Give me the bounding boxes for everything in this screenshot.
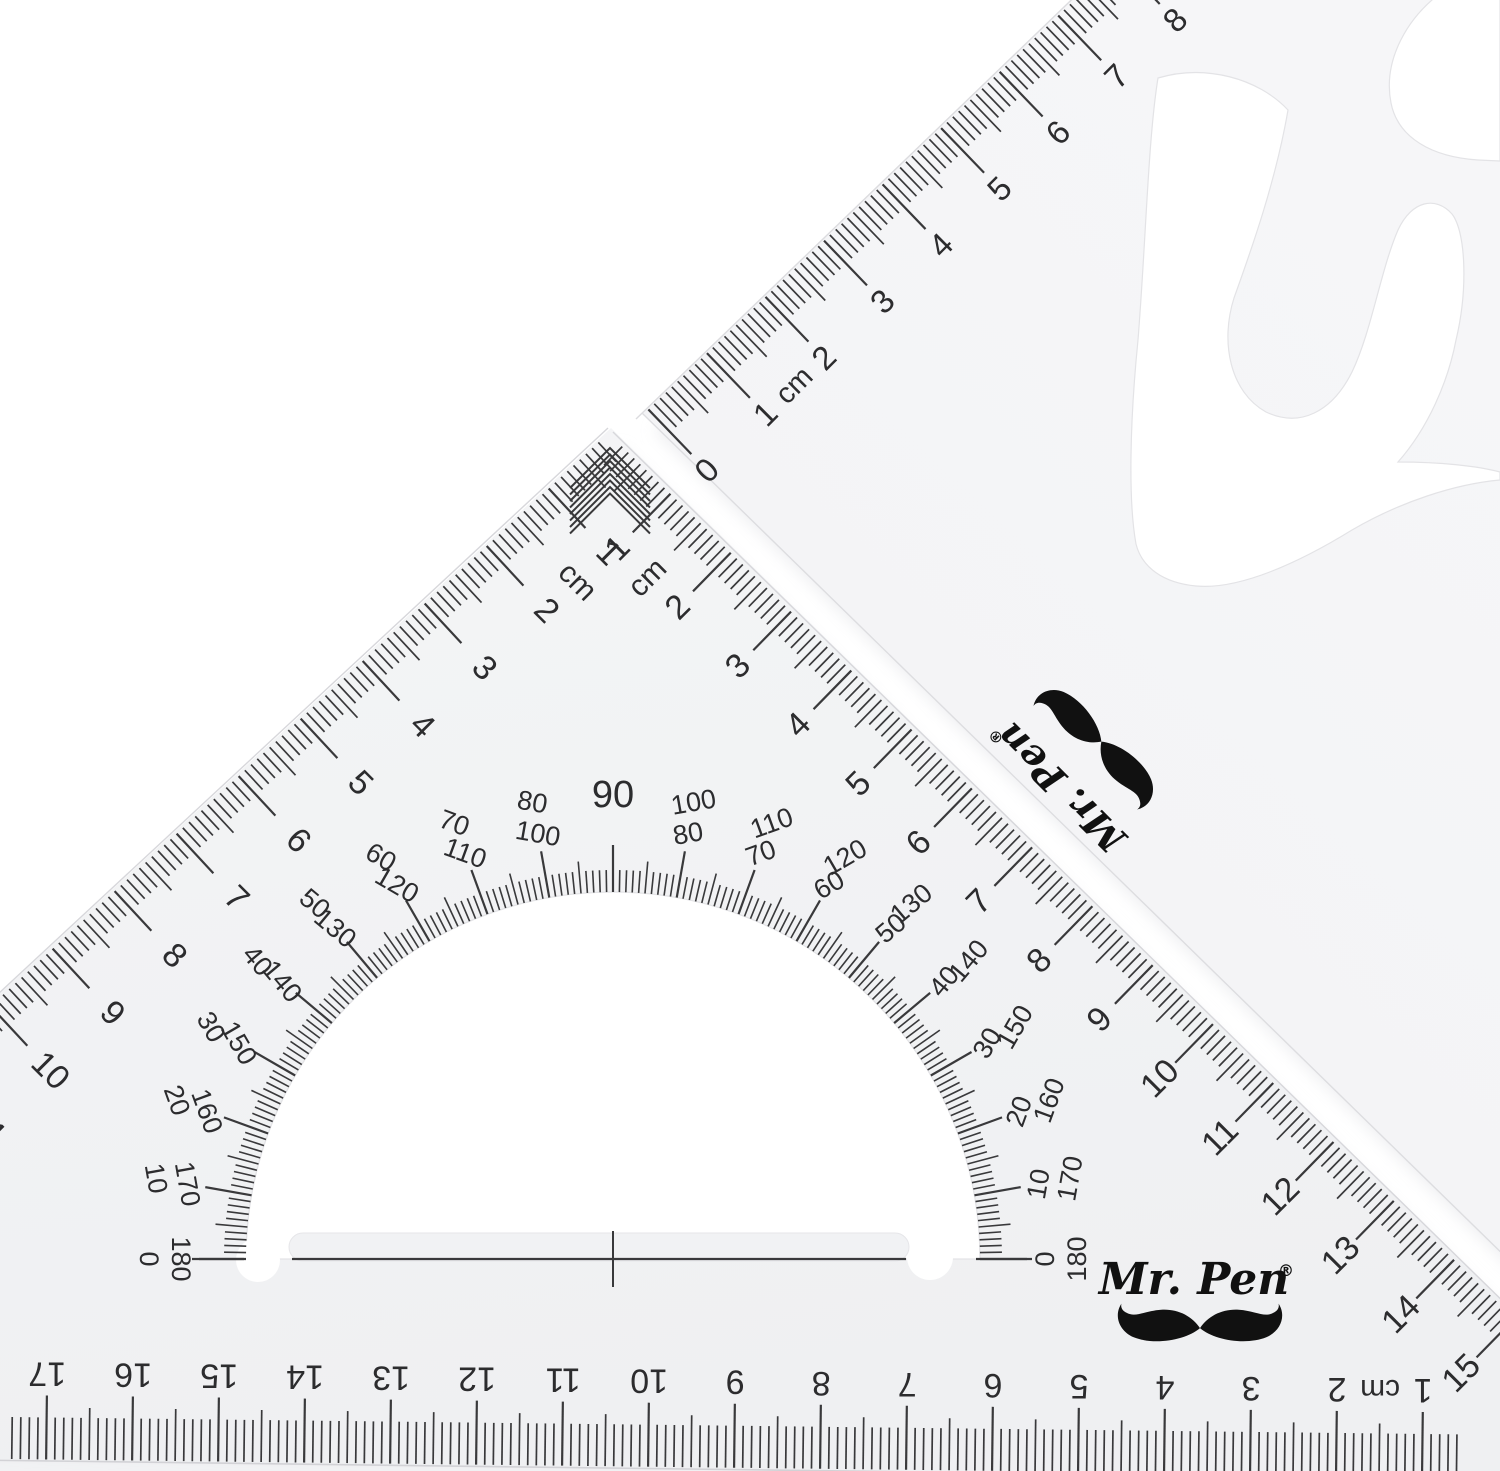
svg-text:12: 12 bbox=[458, 1360, 496, 1398]
ruler-scene: 1cm2345678910111cm2345678910111213141501… bbox=[0, 0, 1500, 1471]
svg-text:180: 180 bbox=[166, 1236, 196, 1281]
svg-text:80: 80 bbox=[671, 816, 706, 851]
svg-text:9: 9 bbox=[726, 1363, 745, 1401]
svg-text:10: 10 bbox=[139, 1161, 174, 1196]
registered-mark: ® bbox=[1278, 1261, 1294, 1280]
svg-text:15: 15 bbox=[200, 1357, 238, 1395]
product-photo: 1cm2345678910111cm2345678910111213141501… bbox=[0, 0, 1500, 1471]
svg-text:0: 0 bbox=[1030, 1251, 1060, 1266]
brand-logo-lower: Mr. Pen ® bbox=[1097, 1254, 1294, 1341]
svg-text:4: 4 bbox=[1156, 1368, 1175, 1406]
svg-text:180: 180 bbox=[1062, 1236, 1092, 1281]
svg-text:13: 13 bbox=[372, 1359, 410, 1397]
svg-text:10: 10 bbox=[1021, 1167, 1056, 1202]
svg-text:6: 6 bbox=[984, 1366, 1003, 1404]
svg-text:5: 5 bbox=[1070, 1367, 1089, 1405]
svg-text:90: 90 bbox=[592, 774, 634, 816]
svg-text:0: 0 bbox=[134, 1251, 164, 1266]
svg-text:7: 7 bbox=[898, 1365, 917, 1403]
svg-text:16: 16 bbox=[114, 1355, 152, 1393]
svg-text:cm: cm bbox=[1360, 1373, 1400, 1406]
svg-text:10: 10 bbox=[630, 1362, 668, 1400]
svg-text:14: 14 bbox=[286, 1358, 324, 1396]
protractor-center-bar bbox=[289, 1233, 909, 1261]
svg-text:17: 17 bbox=[28, 1354, 66, 1392]
svg-text:3: 3 bbox=[1242, 1369, 1261, 1407]
svg-text:2: 2 bbox=[1328, 1370, 1347, 1408]
svg-text:11: 11 bbox=[545, 1361, 580, 1399]
brand-name: Mr. Pen bbox=[1097, 1254, 1289, 1305]
svg-text:1: 1 bbox=[1414, 1371, 1433, 1409]
svg-text:8: 8 bbox=[812, 1364, 831, 1402]
